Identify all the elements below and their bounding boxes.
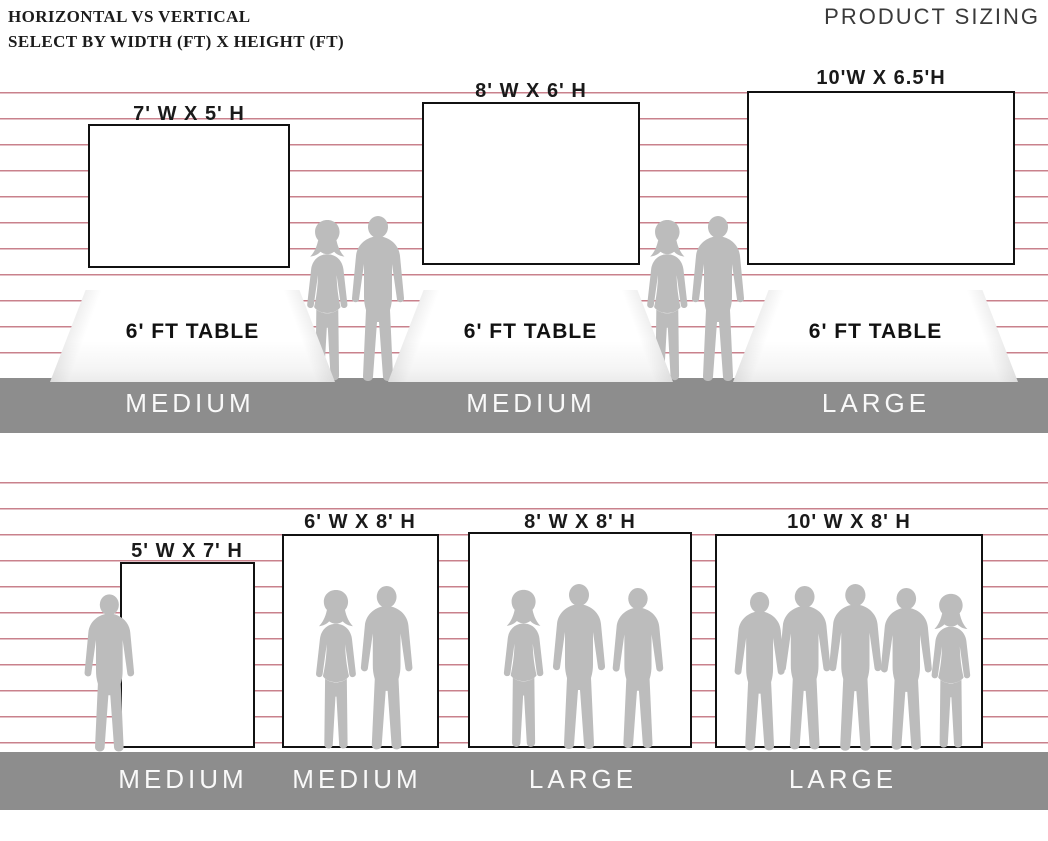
- size-class-label: MEDIUM: [125, 388, 254, 419]
- size-class-label: LARGE: [789, 764, 897, 795]
- size-label-7x5: 7' W X 5' H: [133, 103, 245, 126]
- size-class-label: LARGE: [822, 388, 930, 419]
- size-label-6x8: 6' W X 8' H: [304, 511, 416, 534]
- table-label: 6' FT TABLE: [733, 320, 1018, 344]
- table-label: 6' FT TABLE: [388, 320, 673, 344]
- banner-horizontal-10x65: [747, 91, 1015, 265]
- title-line1: HORIZONTAL VS VERTICAL: [8, 4, 344, 29]
- banner-horizontal-8x6: [422, 102, 640, 265]
- table-1: 6' FT TABLE: [50, 290, 335, 382]
- size-label-8x6: 8' W X 6' H: [475, 80, 587, 103]
- product-sizing-infographic: HORIZONTAL VS VERTICAL SELECT BY WIDTH (…: [0, 0, 1048, 841]
- size-label-10x8: 10' W X 8' H: [787, 511, 911, 534]
- man-silhouette: [76, 590, 144, 760]
- table-3: 6' FT TABLE: [733, 290, 1018, 382]
- banner-horizontal-7x5: [88, 124, 290, 268]
- size-label-10x65: 10'W X 6.5'H: [816, 67, 945, 90]
- group-of-three-silhouette: [490, 582, 674, 752]
- page-title: HORIZONTAL VS VERTICAL SELECT BY WIDTH (…: [8, 4, 344, 54]
- size-class-label: MEDIUM: [292, 764, 421, 795]
- size-class-label: MEDIUM: [466, 388, 595, 419]
- size-label-5x7: 5' W X 7' H: [131, 540, 243, 563]
- product-sizing-title: PRODUCT SIZING: [824, 4, 1040, 30]
- table-2: 6' FT TABLE: [388, 290, 673, 382]
- size-class-label: LARGE: [529, 764, 637, 795]
- couple-silhouette-3: [302, 584, 422, 754]
- table-label: 6' FT TABLE: [50, 320, 335, 344]
- size-label-8x8: 8' W X 8' H: [524, 511, 636, 534]
- size-class-label: MEDIUM: [118, 764, 247, 795]
- title-line2: SELECT BY WIDTH (FT) X HEIGHT (FT): [8, 29, 344, 54]
- group-of-five-silhouette: [726, 582, 980, 756]
